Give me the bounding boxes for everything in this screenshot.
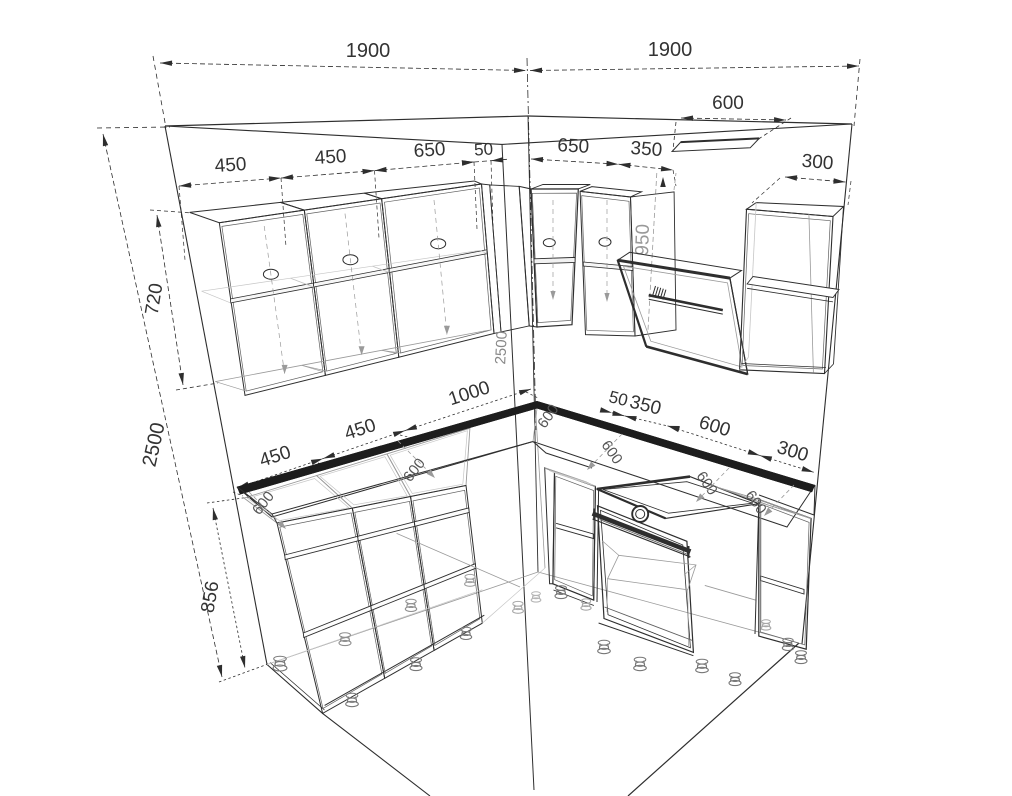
svg-text:650: 650 — [557, 135, 590, 158]
svg-text:1900: 1900 — [648, 39, 693, 61]
svg-text:50: 50 — [474, 139, 494, 159]
svg-text:950: 950 — [632, 224, 654, 256]
svg-text:350: 350 — [630, 138, 663, 161]
svg-text:300: 300 — [801, 151, 834, 175]
svg-text:600: 600 — [712, 93, 744, 114]
svg-text:1900: 1900 — [346, 40, 391, 62]
svg-text:450: 450 — [214, 154, 247, 177]
svg-text:450: 450 — [314, 146, 347, 169]
svg-text:2500: 2500 — [492, 331, 511, 365]
svg-text:650: 650 — [413, 139, 446, 162]
